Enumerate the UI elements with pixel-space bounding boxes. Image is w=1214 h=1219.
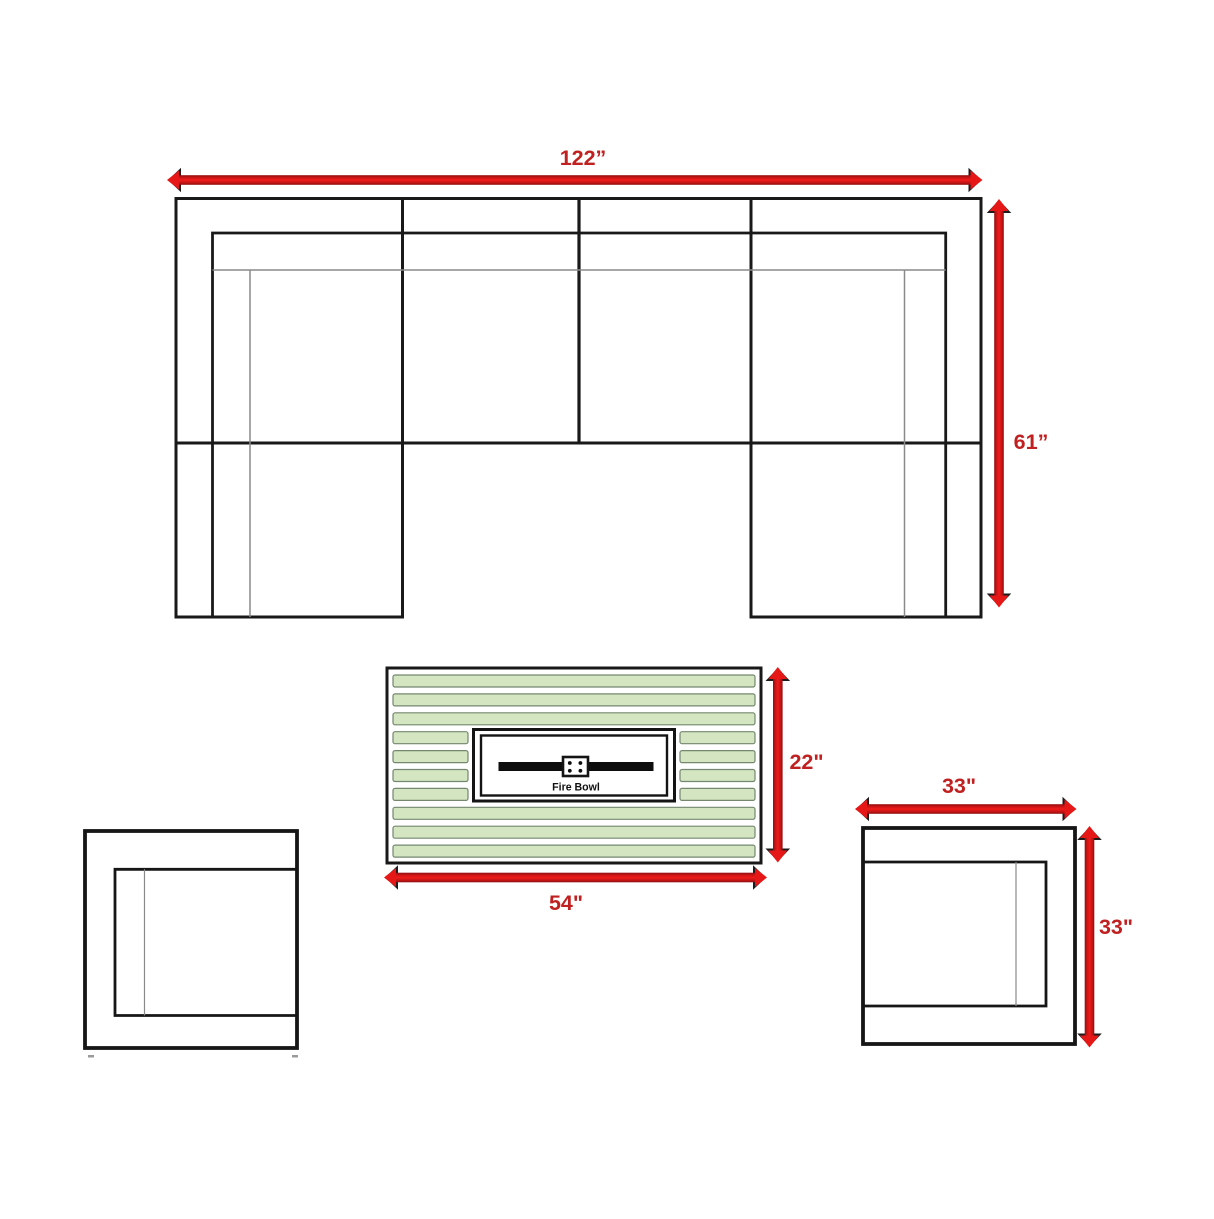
- svg-text:61”: 61”: [1014, 430, 1049, 454]
- svg-text:54": 54": [549, 891, 583, 915]
- svg-text:22": 22": [789, 750, 823, 774]
- svg-text:Fire Bowl: Fire Bowl: [552, 782, 600, 794]
- svg-text:33": 33": [1099, 915, 1133, 939]
- svg-text:122”: 122”: [560, 146, 607, 170]
- svg-text:33": 33": [942, 774, 976, 798]
